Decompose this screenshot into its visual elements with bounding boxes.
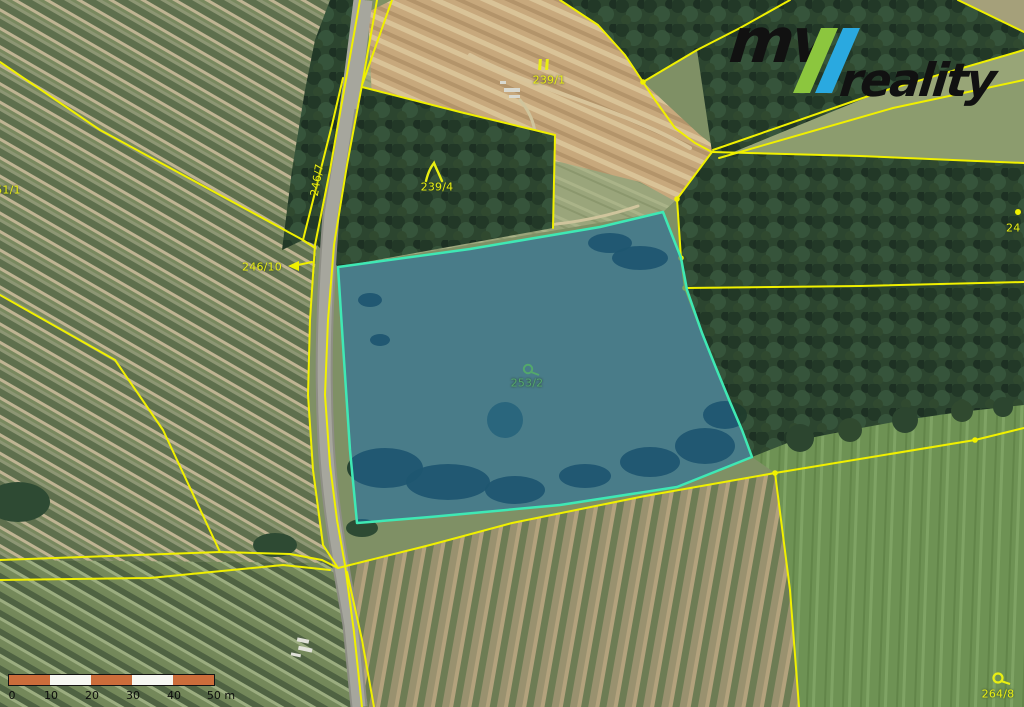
scale-segment	[50, 675, 91, 685]
scale-tick: 0	[9, 689, 16, 702]
field-meadow-bottom-right	[775, 428, 1024, 707]
parcel-label-239-1: 239/1	[533, 74, 566, 87]
parcel-label-253-2: 253/2	[511, 377, 544, 390]
parcel-label-264-8: 264/8	[982, 688, 1015, 701]
parcel-label-24-clipped: 24	[1006, 222, 1020, 235]
logo-text-reality: reality	[837, 56, 996, 104]
mv-reality-logo: mv reality	[728, 14, 1024, 109]
dot-marker-24	[1015, 209, 1021, 215]
parcel-label-239-4: 239/4	[421, 181, 454, 194]
scale-bar: 0 10 20 30 40 50 m	[8, 674, 238, 704]
scale-segment	[132, 675, 173, 685]
scale-segment	[91, 675, 132, 685]
scale-segment	[173, 675, 214, 685]
scale-tick: 40	[167, 689, 181, 702]
parcel-label-246-10: 246/10	[242, 261, 282, 274]
scale-tick: 50 m	[207, 689, 235, 702]
parcel-label-251-1: 251/1	[0, 184, 21, 197]
scale-tick: 20	[85, 689, 99, 702]
scale-segment	[9, 675, 50, 685]
scale-bar-segments	[8, 674, 215, 686]
listing-map-screenshot: 251/1 246/7 246/10 239/4 239/1 253/2 24 …	[0, 0, 1024, 707]
scale-tick: 10	[44, 689, 58, 702]
scale-tick: 30	[126, 689, 140, 702]
